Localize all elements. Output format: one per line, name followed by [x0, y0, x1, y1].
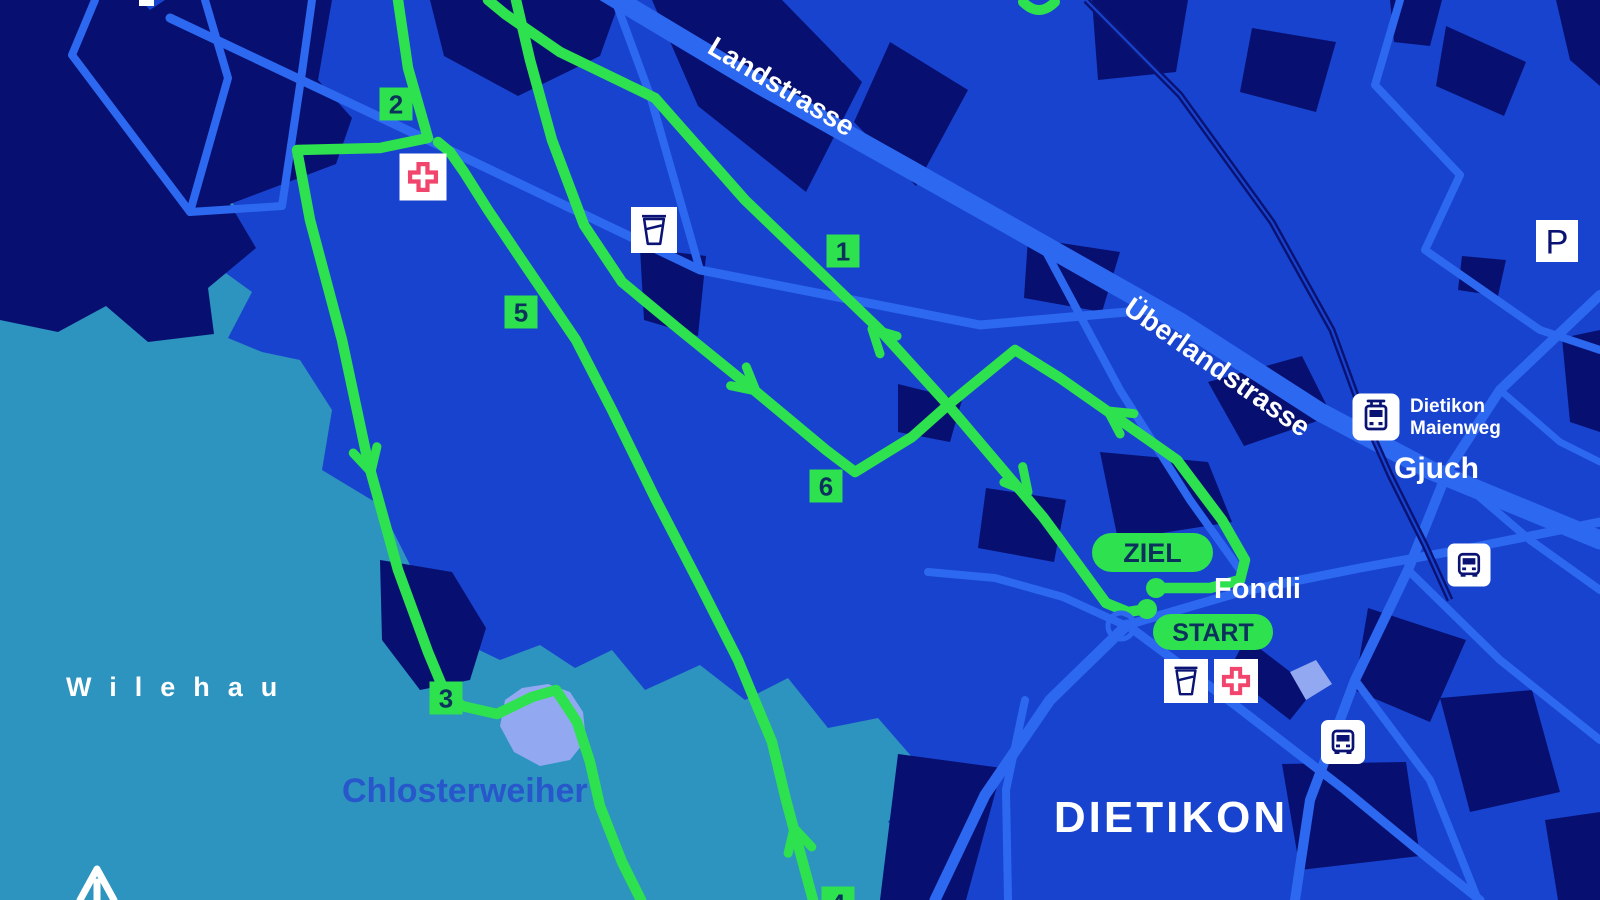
bus-stop-icon: [1448, 544, 1491, 587]
place-label-tram-stop-line2: Maienweg: [1410, 418, 1501, 439]
place-label-dietikon: DIETIKON: [1054, 793, 1288, 842]
parking-letter: P: [1546, 224, 1569, 262]
parking-icon: P: [1536, 220, 1578, 262]
bus-wheel-right: [1472, 574, 1477, 577]
start-badge-label: START: [1172, 619, 1253, 647]
place-label-gjuch: Gjuch: [1394, 452, 1479, 485]
place-label-wilehau: Wilehau: [66, 672, 295, 702]
icon-plate: [631, 207, 677, 253]
bus-light-right: [1472, 567, 1476, 570]
route-marker-label-5: 5: [514, 298, 528, 328]
water-cup-icon: [1164, 659, 1208, 703]
route-endpoint-dot: [1137, 599, 1157, 619]
water-cup-icon: [631, 207, 677, 253]
map-canvas: ZIELSTART123456PLandstrasseÜberlandstras…: [0, 0, 1600, 900]
icon-plate: [1164, 659, 1208, 703]
bus-wheel-left: [1461, 574, 1466, 577]
bus-light-left: [1336, 745, 1340, 748]
dietikon-race-map: ZIELSTART123456PLandstrasseÜberlandstras…: [0, 0, 1600, 900]
tram-light-left: [1370, 422, 1374, 425]
building-polygon: [1092, 0, 1188, 80]
icon-plate: [1321, 720, 1365, 764]
bus-windshield: [1463, 558, 1476, 564]
ziel-badge-label: ZIEL: [1123, 538, 1182, 568]
tram-stop-icon: [1353, 394, 1400, 441]
bus-light-left: [1462, 567, 1466, 570]
first-aid-icon: [1214, 659, 1258, 703]
first-aid-icon: [400, 154, 447, 201]
bus-windshield: [1337, 735, 1350, 742]
bus-wheel-right: [1347, 751, 1352, 754]
tram-window: [1370, 410, 1383, 417]
route-marker-label-2: 2: [389, 90, 403, 120]
bus-wheel-left: [1335, 751, 1340, 754]
place-label-tram-stop-line1: Dietikon: [1410, 396, 1485, 417]
tram-light-right: [1379, 422, 1383, 425]
route-marker-label-4: 4: [831, 889, 846, 900]
place-label-chlosterweiher: Chlosterweiher: [342, 772, 588, 810]
route-marker-label-6: 6: [819, 472, 833, 502]
bus-stop-icon: [1321, 720, 1365, 764]
icon-plate: [1448, 544, 1491, 587]
route-endpoint-dot: [1146, 578, 1166, 598]
route-marker-label-1: 1: [836, 237, 850, 267]
bus-light-right: [1346, 745, 1350, 748]
clipped-map-symbol: [139, 0, 154, 6]
place-label-fondli: Fondli: [1214, 573, 1301, 605]
route-marker-label-3: 3: [439, 684, 453, 714]
